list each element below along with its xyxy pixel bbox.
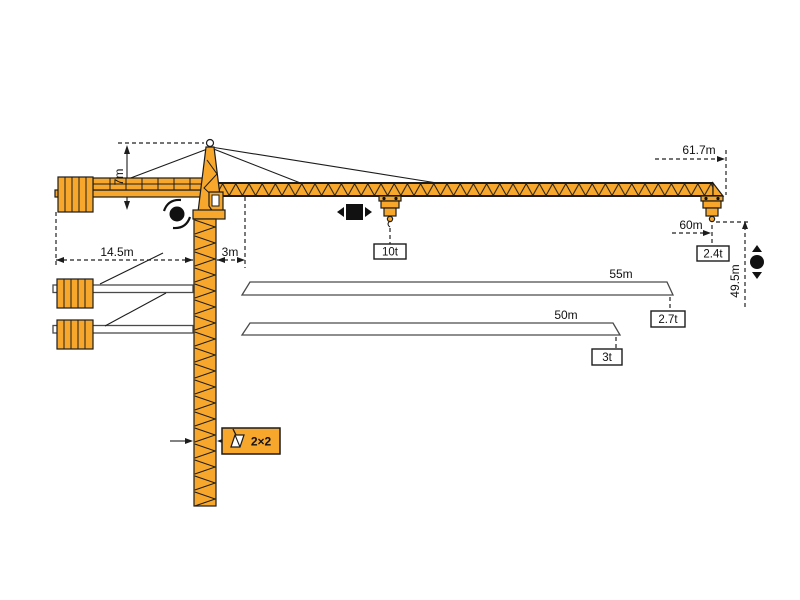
jib-lattice [216, 183, 713, 196]
wheel-icon [704, 197, 707, 200]
tip-trolley [701, 196, 723, 222]
counterweight-stack [57, 279, 93, 308]
counterweight-stack [58, 177, 93, 212]
arrowhead-down-icon [124, 201, 130, 210]
hook-sheave [709, 216, 714, 221]
head-height-label: 7m [112, 169, 126, 186]
counterjib-radius-label: 14.5m [100, 245, 133, 259]
trolley-body [381, 201, 399, 208]
jib-offset-label: 3m [222, 245, 239, 259]
max-capacity-label: 10t [382, 247, 399, 259]
arrowhead-right-icon [185, 257, 193, 263]
counterjib-cable [128, 148, 210, 179]
mast-section-label: 2×2 [251, 435, 272, 449]
jib-option-55m [242, 282, 685, 327]
jib-length-label: 61.7m [682, 143, 715, 157]
hook-block [706, 208, 718, 216]
tip-capacity-50-label: 3t [602, 352, 612, 364]
hook-height-label: 49.5m [728, 264, 742, 297]
counterweight-option-a [53, 253, 193, 308]
tip-capacity-617-label: 2.4t [703, 249, 723, 261]
hoist-up-down-icon [750, 245, 764, 279]
diagram-canvas: 7m 14.5m 3m 61.7m 60m 49.5m 10t 2.4t 55m… [0, 0, 800, 600]
apex-pin [207, 140, 214, 147]
counterweight-stack [57, 320, 93, 349]
wheel-icon [394, 197, 397, 200]
radius-60-label: 60m [679, 218, 702, 232]
arrowhead-left-icon [56, 257, 64, 263]
arrowhead-up-icon [124, 145, 130, 154]
trolley-wheels [379, 196, 401, 201]
jib-cable-short [211, 148, 303, 184]
slewing-rotation-icon [164, 200, 190, 228]
jib-50-label: 50m [554, 308, 577, 322]
trolley-travel-icon [337, 204, 372, 220]
tip-capacity-55-label: 2.7t [658, 314, 678, 326]
leader-line [105, 293, 166, 326]
jib-55-label: 55m [609, 267, 632, 281]
jib-bar-55m [242, 282, 673, 295]
slewing-unit [193, 210, 225, 219]
hook-sheave [387, 216, 392, 221]
main-trolley [379, 196, 401, 227]
jib-cable-long [211, 147, 437, 183]
crane-load-diagram: 7m 14.5m 3m 61.7m 60m 49.5m 10t 2.4t 55m… [0, 0, 800, 600]
jib-tip [713, 183, 723, 196]
arrowhead-right-icon [185, 438, 193, 444]
cab-window [212, 195, 219, 206]
wheel-icon [716, 197, 719, 200]
trolley-body [703, 201, 721, 208]
jib-option-50m [242, 323, 622, 365]
arrowhead-right-icon [717, 156, 725, 162]
jib-bar-50m [242, 323, 620, 335]
hook-block [384, 208, 396, 216]
arrowhead-right-icon [703, 230, 711, 236]
trolley-wheels [701, 196, 723, 201]
wheel-icon [382, 197, 385, 200]
mast-lattice [194, 219, 216, 506]
